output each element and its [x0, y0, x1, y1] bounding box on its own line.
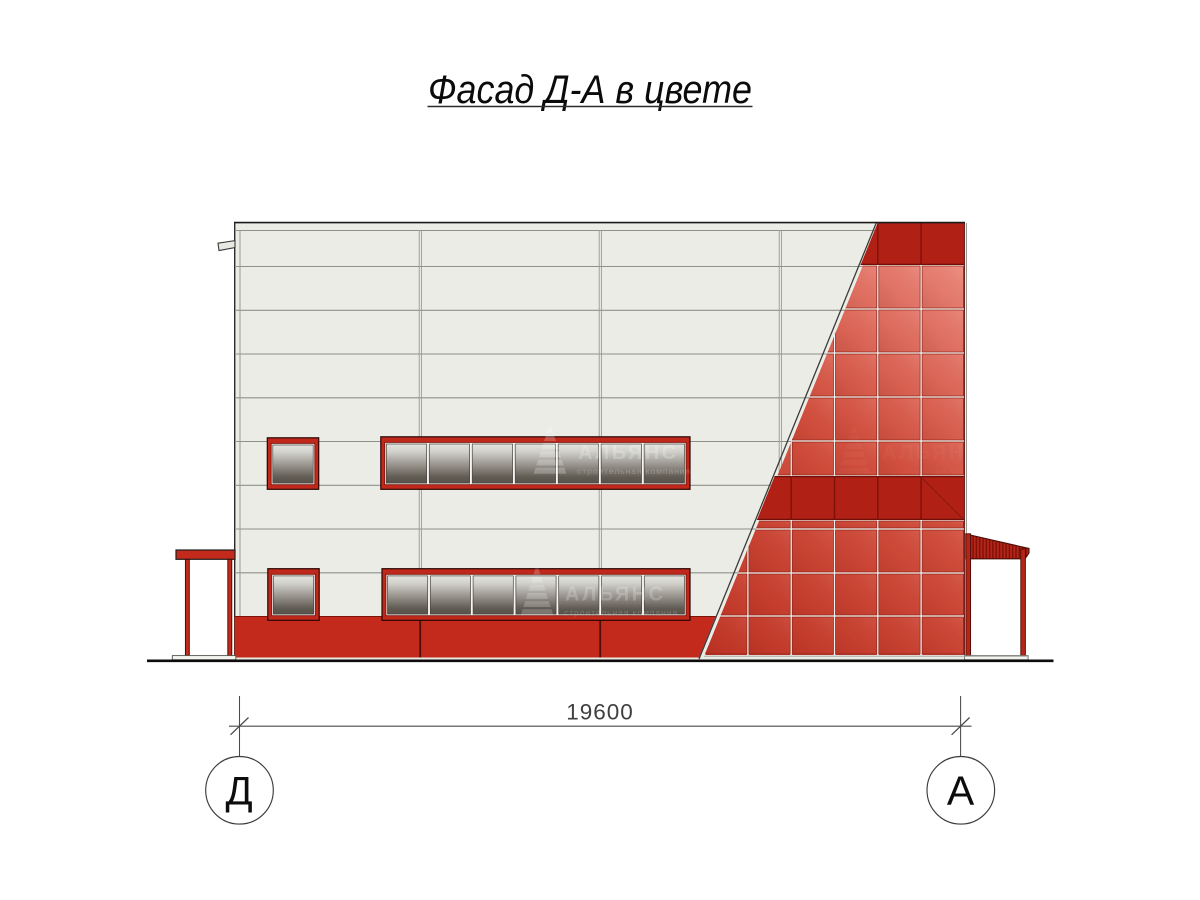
- svg-text:Д: Д: [225, 770, 252, 814]
- svg-text:19600: 19600: [566, 700, 634, 725]
- svg-text:строительная компания: строительная компания: [577, 466, 691, 476]
- svg-text:Фасад Д-А в цвете: Фасад Д-А в цвете: [428, 68, 752, 112]
- svg-text:АЛЬЯНС: АЛЬЯНС: [565, 584, 666, 606]
- svg-text:АЛЬЯНС: АЛЬЯНС: [578, 442, 679, 464]
- svg-text:строительная компания: строительная компания: [881, 466, 995, 476]
- svg-text:А: А: [947, 768, 975, 814]
- svg-text:АЛЬЯНС: АЛЬЯНС: [882, 442, 983, 464]
- svg-text:строительная компания: строительная компания: [564, 608, 678, 618]
